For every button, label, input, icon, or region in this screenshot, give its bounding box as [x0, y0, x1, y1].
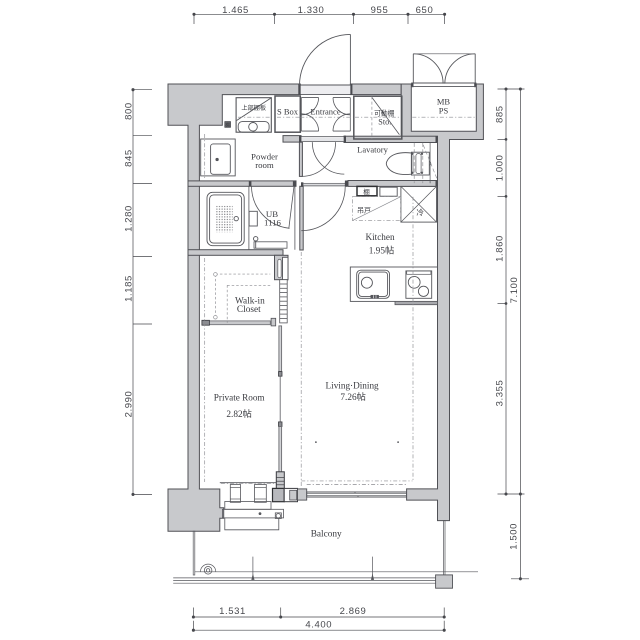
svg-text:845: 845 [123, 149, 134, 167]
svg-text:1.860: 1.860 [495, 235, 506, 262]
svg-text:Balcony: Balcony [311, 530, 342, 540]
svg-text:棚: 棚 [363, 187, 370, 196]
svg-text:1.330: 1.330 [298, 5, 325, 16]
svg-text:room: room [255, 160, 274, 170]
svg-text:Sto.: Sto. [378, 118, 391, 127]
svg-text:3.355: 3.355 [495, 380, 506, 407]
svg-text:Entrance: Entrance [310, 106, 340, 116]
svg-text:4.400: 4.400 [305, 619, 332, 630]
svg-text:吊戸: 吊戸 [357, 207, 371, 215]
svg-text:1.280: 1.280 [123, 205, 134, 232]
svg-text:955: 955 [371, 5, 389, 16]
svg-text:可動棚: 可動棚 [374, 108, 395, 117]
svg-text:1.465: 1.465 [222, 5, 249, 16]
svg-text:1.500: 1.500 [509, 523, 520, 550]
svg-text:1.000: 1.000 [495, 155, 506, 182]
svg-text:650: 650 [416, 5, 434, 16]
svg-text:2.869: 2.869 [340, 606, 367, 617]
svg-text:Private Room: Private Room [214, 392, 265, 402]
svg-text:Lavatory: Lavatory [357, 145, 388, 155]
svg-text:Closet: Closet [237, 305, 261, 315]
svg-text:7.26帖: 7.26帖 [340, 391, 366, 403]
svg-text:上部棚板: 上部棚板 [241, 104, 266, 112]
svg-text:Kitchen: Kitchen [365, 232, 394, 242]
svg-text:1.531: 1.531 [219, 606, 246, 617]
svg-text:1.95帖: 1.95帖 [369, 244, 395, 256]
svg-text:1116: 1116 [264, 218, 282, 228]
svg-text:1.185: 1.185 [123, 275, 134, 302]
svg-text:2.82帖: 2.82帖 [226, 408, 252, 420]
svg-text:7.100: 7.100 [509, 277, 520, 304]
svg-text:棚: 棚 [225, 122, 230, 129]
svg-text:885: 885 [495, 105, 506, 123]
svg-text:Living·Dining: Living·Dining [326, 380, 379, 390]
svg-text:冷: 冷 [416, 207, 424, 217]
svg-text:S Box: S Box [277, 106, 299, 116]
svg-text:PS: PS [439, 106, 449, 116]
svg-text:2.990: 2.990 [123, 391, 134, 418]
svg-text:800: 800 [123, 102, 134, 120]
